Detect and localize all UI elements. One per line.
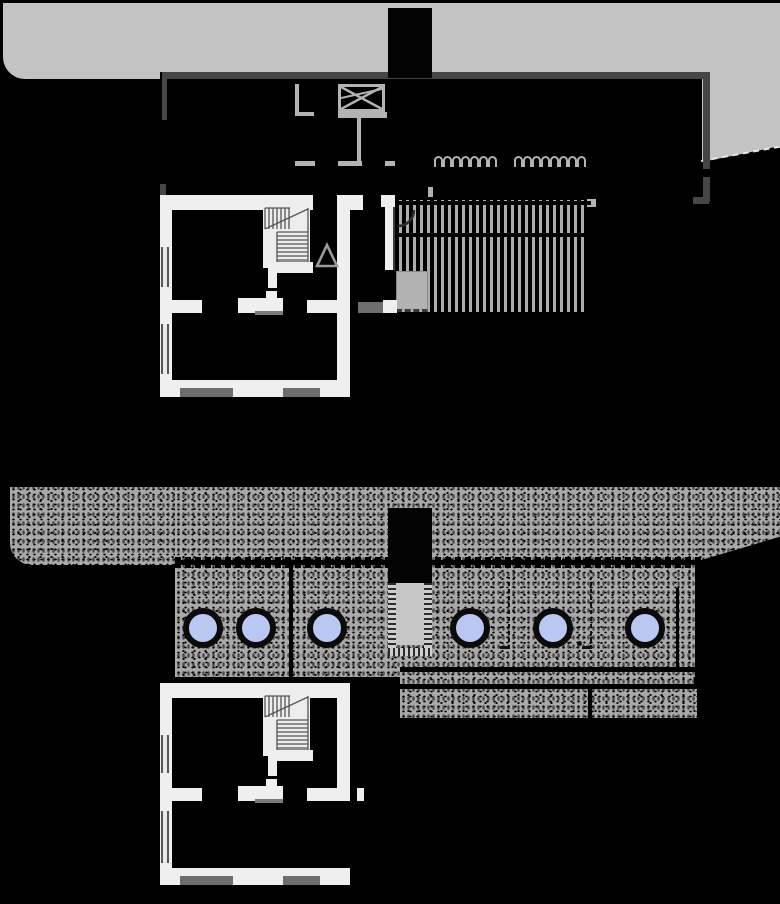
- window-scallop: [470, 156, 479, 167]
- earth-step-strip-gap: [588, 689, 592, 718]
- channel-wall-right: [424, 583, 432, 655]
- window-scallop: [550, 156, 559, 167]
- upper-interior-stub-a: [295, 161, 315, 166]
- house-upper-chimney-west-wall: [385, 207, 395, 270]
- house-upper-door-threshold-1: [180, 388, 233, 397]
- channel-wall-bottom: [388, 648, 432, 656]
- trellis-beam: [567, 200, 570, 312]
- upper-interior-wall-foot: [338, 161, 362, 166]
- upper-storey-wall-right: [703, 72, 710, 169]
- window-scallop: [541, 156, 550, 167]
- terrain-upper-band: [120, 3, 780, 72]
- earth-dashed-line-1: [175, 557, 703, 560]
- wall-trace-hook-1: [500, 646, 509, 649]
- upper-storey-wall-top: [162, 72, 708, 79]
- boulder-column: [450, 608, 490, 648]
- house-upper-mid-step-line: [255, 311, 283, 315]
- house-upper-stair-lwall-v: [268, 262, 277, 288]
- earth-band-left-lobe: [10, 487, 175, 565]
- house-lower-window-1: [161, 735, 169, 773]
- window-scallop: [559, 156, 568, 167]
- window-scallop: [568, 156, 577, 167]
- house-lower-door-threshold-1: [180, 876, 233, 885]
- wall-trace-dashed-2: [590, 577, 592, 649]
- house-lower-mid-wall-right: [307, 788, 350, 801]
- boulder-column: [533, 608, 573, 648]
- trellis-beam: [504, 200, 507, 312]
- trellis-beam: [462, 200, 465, 312]
- wall-trace-dashed-1: [508, 577, 510, 649]
- upper-storey-wall-left: [162, 72, 167, 120]
- house-lower-door-threshold-2: [283, 876, 320, 885]
- house-upper-mid-wall-left: [160, 300, 202, 313]
- window-scallop: [461, 156, 470, 167]
- trellis-beam: [518, 200, 521, 312]
- trellis-beam: [434, 200, 437, 312]
- chimney-lower: [388, 508, 432, 584]
- hatch-triangle-symbol: [315, 242, 339, 269]
- trellis-beam: [483, 200, 486, 312]
- trellis-beam: [581, 200, 584, 312]
- upper-interior-sill-bar: [338, 112, 387, 118]
- window-scallop-group: [514, 156, 586, 166]
- earth-band-right: [175, 487, 780, 560]
- house-upper-window-2: [161, 324, 169, 374]
- window-scallop: [514, 156, 523, 167]
- house-lower-window-2: [161, 811, 169, 863]
- house-upper-east-stub: [383, 300, 397, 313]
- planter-box: [396, 271, 428, 312]
- trellis-beam: [511, 200, 514, 312]
- trellis-beam: [455, 200, 458, 312]
- earth-step-strip-thin: [400, 672, 694, 684]
- upper-interior-wall-L-horizontal: [295, 112, 314, 116]
- house-upper-chimney-bar: [381, 195, 395, 207]
- trellis-beam: [525, 200, 528, 312]
- house-lower-mid-wall-left: [160, 788, 202, 801]
- house-lower-stair-lwall-v: [268, 750, 277, 776]
- wall-trace-hook-2: [582, 646, 591, 649]
- trellis-beam: [476, 200, 479, 312]
- upper-interior-wall-vertical: [357, 118, 361, 165]
- chimney-upper: [388, 8, 432, 78]
- house-upper-corner-tick: [160, 184, 166, 195]
- trellis-dash-row-1: [398, 201, 592, 205]
- terrain-upper-right-slope: [702, 3, 780, 162]
- skylight-crossed-box: [338, 84, 385, 112]
- floor-plan-drawing: [0, 0, 780, 904]
- house-lower-mid-wall-notch: [266, 779, 277, 788]
- upper-interior-wall-L-vertical: [295, 84, 299, 115]
- house-lower-right-wall: [337, 698, 350, 801]
- window-scallop: [488, 156, 497, 167]
- door-swing-arc: [396, 206, 424, 228]
- upper-storey-wall-right-hook: [693, 197, 709, 204]
- boulder-column: [625, 608, 665, 648]
- house-upper-east-threshold: [358, 302, 383, 313]
- window-scallop: [523, 156, 532, 167]
- earth-step-strip-thick: [400, 689, 697, 718]
- channel-wall-left: [388, 583, 396, 655]
- channel-interior: [396, 583, 424, 645]
- boulder-band-divider-2: [676, 588, 679, 677]
- trellis-dash-row-2: [398, 233, 592, 237]
- house-lower-top-wall: [160, 683, 350, 698]
- house-lower-east-stub: [357, 788, 364, 801]
- trellis-beam: [553, 200, 556, 312]
- house-upper-window-1: [161, 247, 169, 287]
- window-scallop: [532, 156, 541, 167]
- window-scallop: [443, 156, 452, 167]
- trellis-beam: [448, 200, 451, 312]
- trellis-beam: [441, 200, 444, 312]
- house-upper-door-threshold-2: [283, 388, 320, 397]
- boulder-band-divider-1: [289, 565, 293, 677]
- trellis-beam: [560, 200, 563, 312]
- trellis-beam: [546, 200, 549, 312]
- boulder-column: [236, 608, 276, 648]
- boulder-column: [183, 608, 223, 648]
- boulder-column: [307, 608, 347, 648]
- trellis-beam: [490, 200, 493, 312]
- survey-dot: [577, 641, 582, 646]
- trellis-beam: [497, 200, 500, 312]
- stair-lower: [263, 684, 310, 756]
- stair-upper: [263, 196, 310, 268]
- window-scallop: [479, 156, 488, 167]
- trellis-tick: [428, 187, 433, 197]
- upper-interior-stub-b: [385, 161, 395, 166]
- trellis-beam: [532, 200, 535, 312]
- window-scallop: [452, 156, 461, 167]
- trellis-beam: [539, 200, 542, 312]
- house-lower-mid-step-line: [255, 799, 283, 803]
- window-scallop-group: [434, 156, 497, 166]
- window-scallop: [577, 156, 586, 167]
- trellis-beam: [574, 200, 577, 312]
- trellis-beam: [469, 200, 472, 312]
- house-upper-mid-wall-right: [307, 300, 350, 313]
- skylight-cross-lines: [341, 87, 382, 109]
- earth-dashed-line-2: [175, 565, 703, 568]
- window-scallop: [434, 156, 443, 167]
- house-upper-mid-wall-notch: [266, 291, 277, 300]
- house-upper-top-stub: [337, 195, 363, 210]
